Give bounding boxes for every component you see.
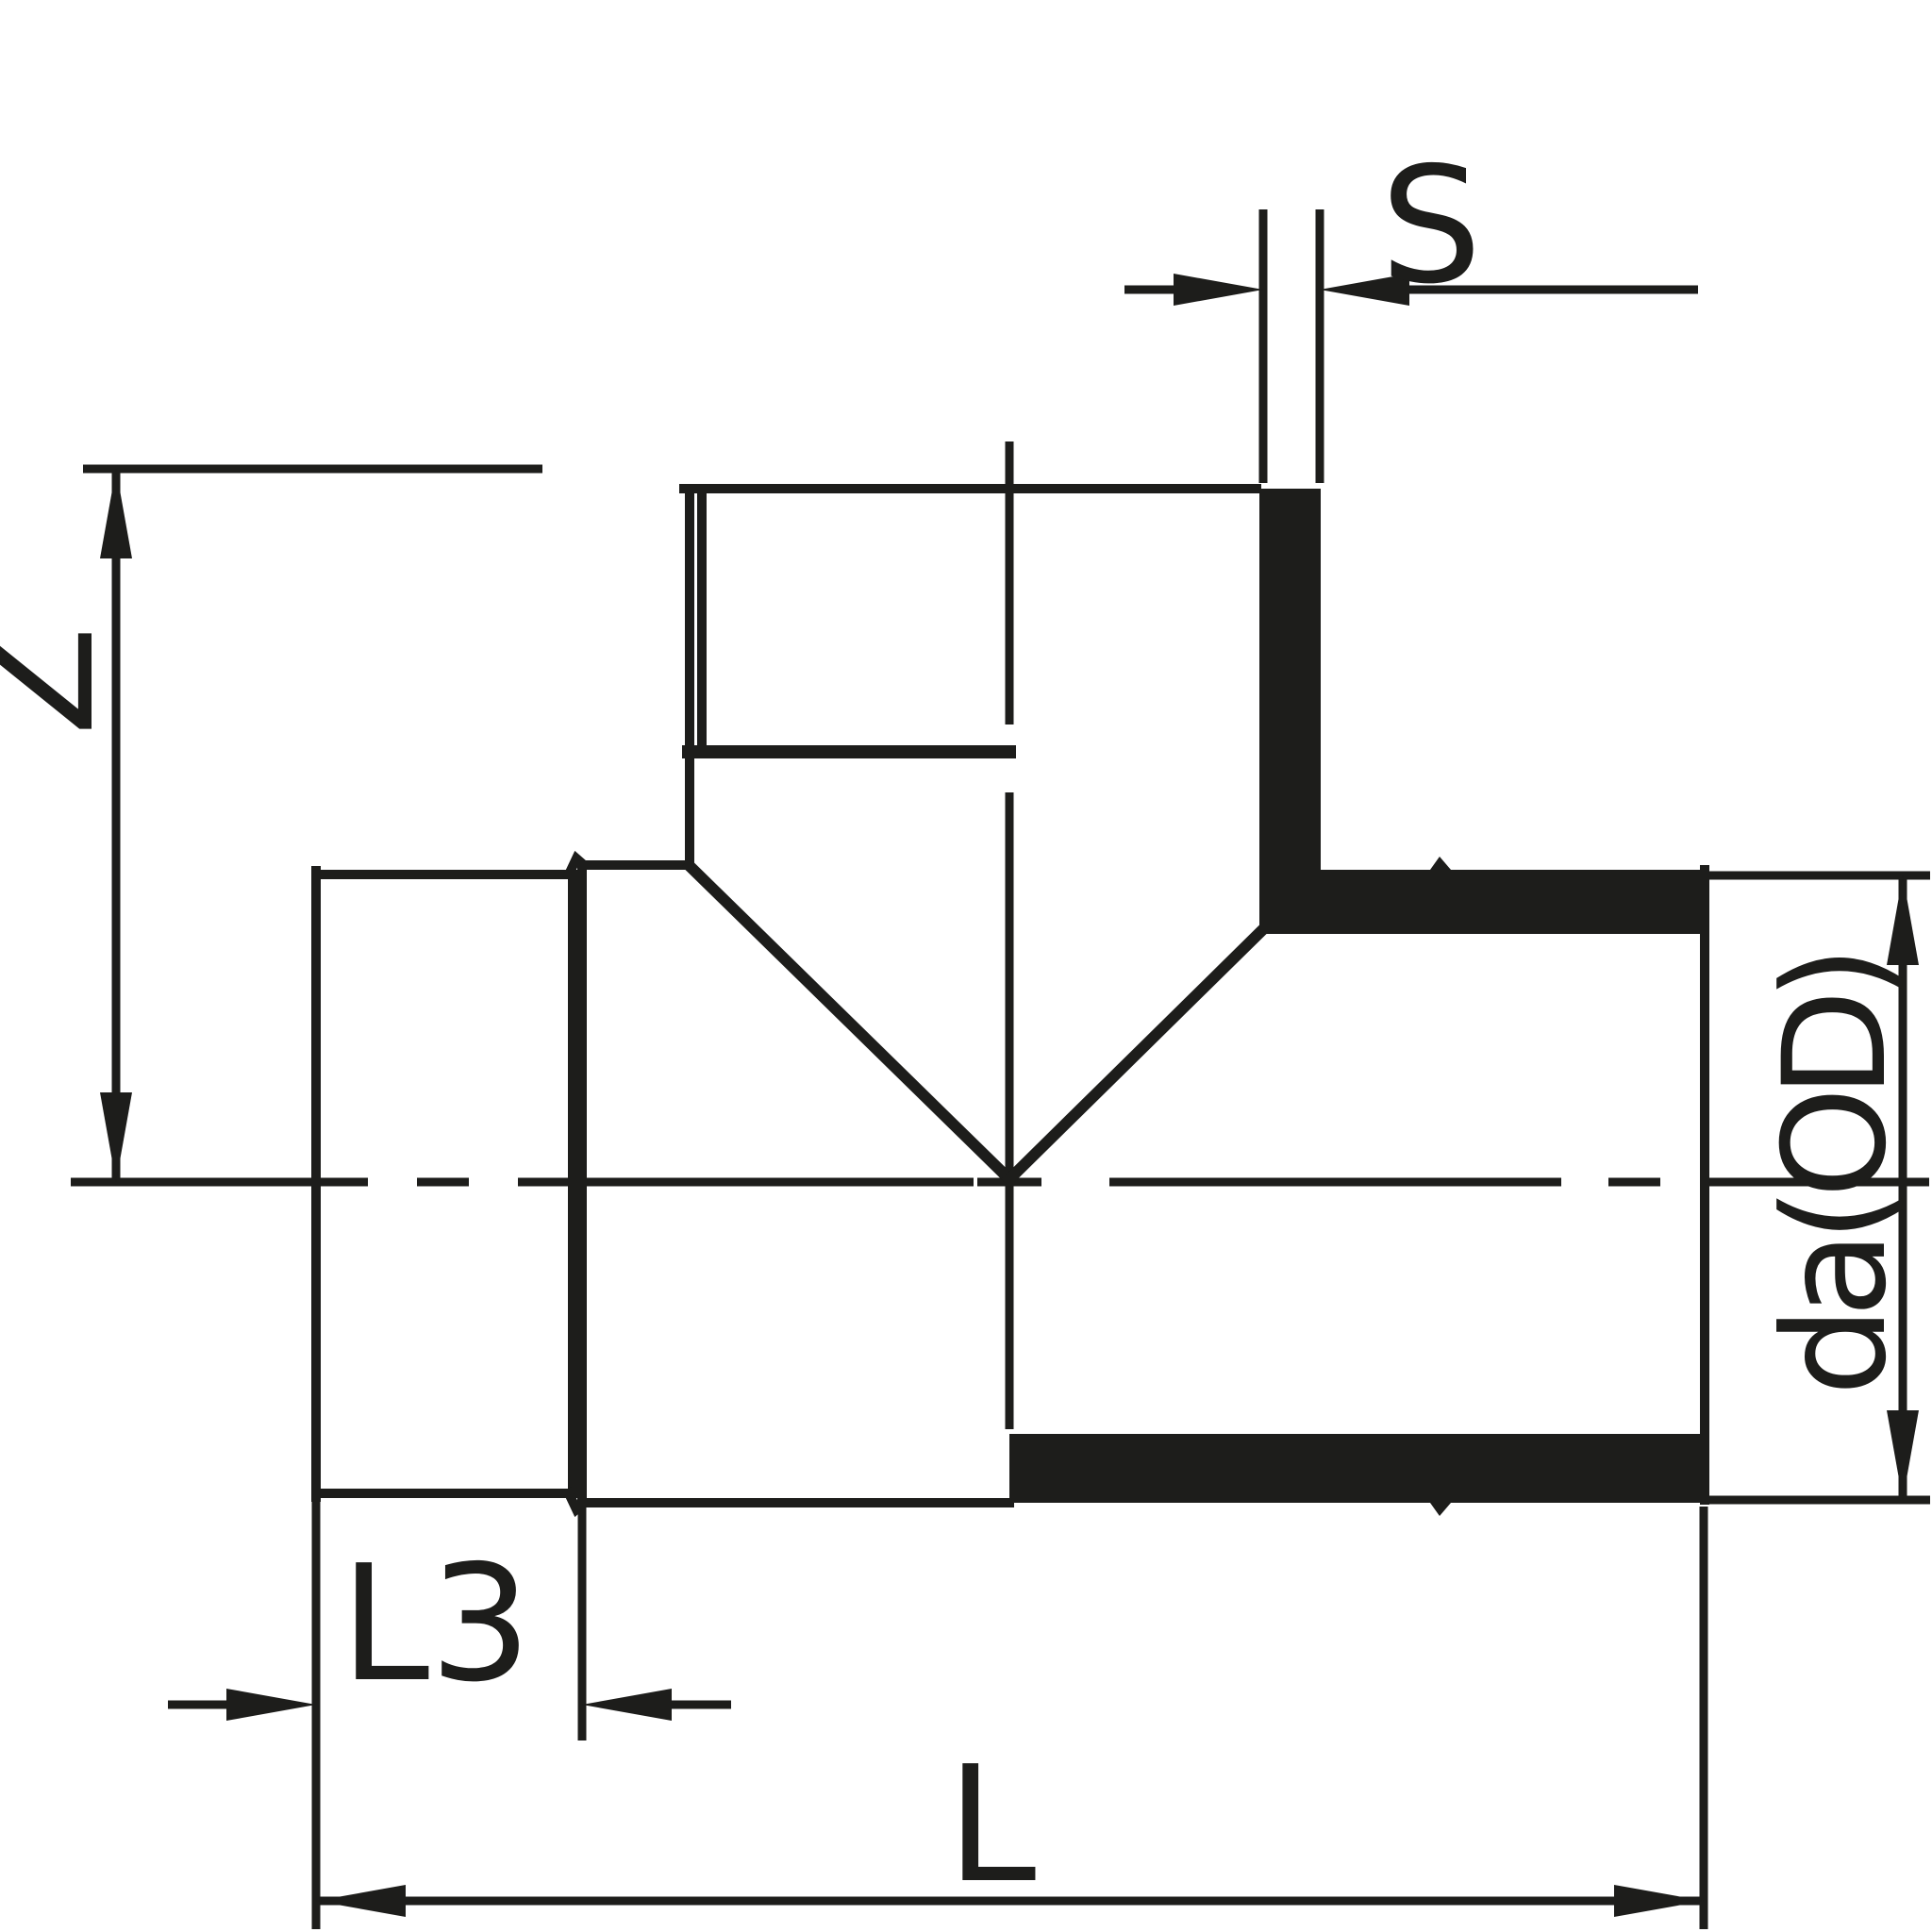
l-arrow-right <box>1614 1885 1704 1917</box>
run-bottom-wall-section <box>1009 1434 1706 1516</box>
dimension-z: Z <box>0 469 542 1182</box>
z-arrow-up <box>100 469 132 558</box>
branch-right-wall-section <box>1259 489 1705 934</box>
l-arrow-left <box>316 1885 406 1917</box>
da-od-label: da(OD) <box>1754 957 1918 1396</box>
dimension-l3: L3 <box>168 1507 731 1740</box>
z-label: Z <box>0 626 130 736</box>
section-fills <box>1009 489 1706 1516</box>
s-label: S <box>1380 133 1482 320</box>
l3-arrow-left <box>226 1689 316 1721</box>
tee-fitting-diagram: S Z L3 L <box>0 0 1932 1932</box>
da-arrow-down <box>1887 1410 1919 1500</box>
dimension-da-od: da(OD) <box>1709 875 1930 1500</box>
l3-label: L3 <box>341 1531 532 1718</box>
technical-drawing-canvas: S Z L3 L <box>0 0 1932 1932</box>
z-arrow-down <box>100 1092 132 1182</box>
da-arrow-up <box>1887 875 1919 965</box>
s-arrow-left <box>1174 274 1263 306</box>
l3-arrow-right <box>582 1689 672 1721</box>
centerlines <box>71 441 1929 1429</box>
chamfer-left-leg <box>690 866 1009 1179</box>
dimension-s: S <box>1124 133 1698 483</box>
l-label: L <box>947 1732 1037 1919</box>
chamfer-right-leg <box>1009 931 1261 1179</box>
